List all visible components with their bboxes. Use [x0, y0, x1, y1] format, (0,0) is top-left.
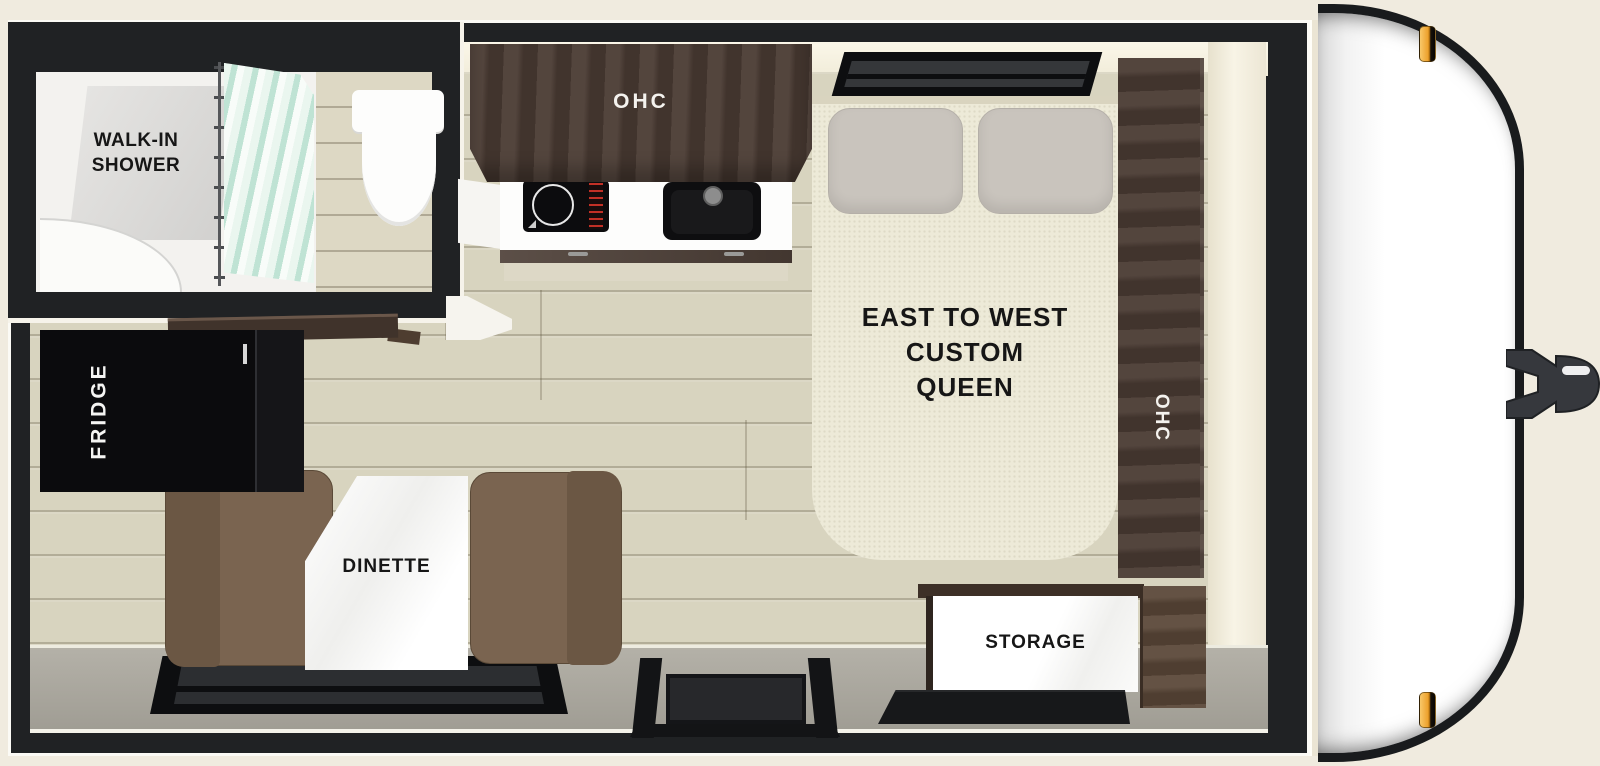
refrigerator: FRIDGE	[40, 330, 302, 492]
step-mat	[878, 690, 1130, 724]
kitchen-overhead-cabinet: OHC	[470, 44, 812, 182]
cabinet-hinge	[724, 252, 744, 256]
fridge-label-wrap: FRIDGE	[40, 330, 160, 492]
cooktop	[523, 180, 609, 232]
marker-light-bottom	[1419, 692, 1436, 728]
shower-curtain	[224, 63, 314, 283]
base-cabinet-face	[504, 263, 788, 281]
entry-door	[636, 658, 834, 738]
tongue-hitch	[1506, 342, 1600, 426]
front-wall-inner-face	[1208, 42, 1266, 648]
pillow-right	[978, 108, 1113, 214]
window-bar	[847, 74, 1086, 79]
kitchen-ohc-label: OHC	[470, 90, 812, 114]
dinette-seat-right	[470, 472, 622, 664]
walk-in-shower-label: WALK-IN SHOWER	[36, 128, 236, 178]
burner-ring	[532, 184, 574, 226]
window-pane	[174, 666, 544, 704]
storage-box: STORAGE	[926, 596, 1138, 692]
hitch-slot	[1562, 366, 1590, 375]
fridge-side-face	[255, 330, 304, 492]
bathroom-interior: WALK-IN SHOWER	[36, 72, 432, 292]
dinette-label: DINETTE	[305, 556, 468, 578]
cabinet-hinge	[568, 252, 588, 256]
seat-back-cushion	[567, 471, 621, 665]
floor-seam	[745, 420, 747, 520]
bed-label-line1: EAST TO WEST	[830, 300, 1100, 335]
storage-label: STORAGE	[933, 632, 1138, 654]
bed-label-line2: CUSTOM	[830, 335, 1100, 370]
door-sill	[630, 724, 840, 737]
pillow-left	[828, 108, 963, 214]
floorplan-canvas: WALK-IN SHOWER OHC EAST TO WEST CUSTOM Q…	[0, 0, 1600, 766]
fridge-label: FRIDGE	[88, 362, 112, 459]
walk-in-shower-label-line1: WALK-IN	[36, 128, 236, 153]
counter-end-panel	[458, 179, 502, 249]
floor-seam	[540, 290, 542, 400]
bedside-ohc-label: OHC	[1149, 375, 1173, 461]
seat-back-cushion	[166, 469, 220, 667]
window-bar	[170, 686, 548, 692]
bed-label: EAST TO WEST CUSTOM QUEEN	[830, 300, 1100, 405]
trailer-front-cap	[1318, 4, 1524, 762]
bedroom-window	[832, 52, 1103, 96]
sink-faucet	[703, 186, 723, 206]
wardrobe-cabinet	[1140, 586, 1206, 708]
walk-in-shower-label-line2: SHOWER	[36, 153, 236, 178]
counter-front-edge	[500, 250, 792, 263]
fridge-handle	[243, 344, 247, 364]
cooktop-controls	[589, 183, 603, 229]
bedside-overhead-cabinet: OHC	[1118, 58, 1204, 578]
entry-step	[666, 674, 806, 724]
shower-curtain-rod	[218, 62, 221, 286]
bed-label-line3: QUEEN	[830, 370, 1100, 405]
kitchen-sink	[663, 182, 761, 240]
marker-light-top	[1419, 26, 1436, 62]
cooktop-mark	[528, 220, 536, 228]
